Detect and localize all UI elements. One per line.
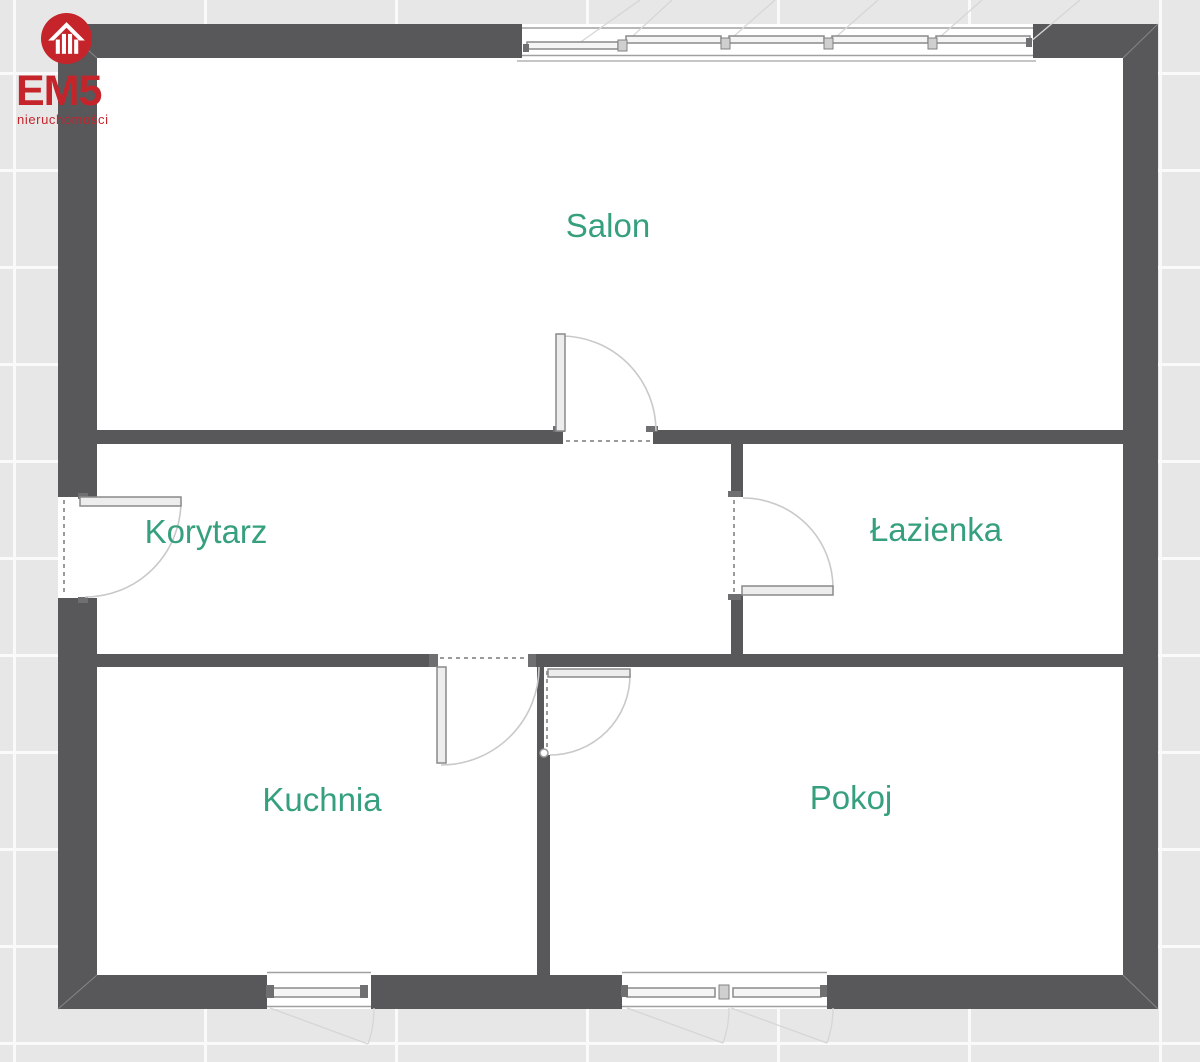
window-sash (273, 988, 364, 997)
window-mullion (824, 38, 833, 49)
room-label-salon: Salon (566, 207, 650, 245)
window-swing-lines (270, 1008, 374, 1044)
logo-tagline-text: nieruchomości (17, 112, 109, 127)
window-end-cap (266, 985, 274, 998)
window-sash (729, 36, 824, 43)
door-leaf (556, 334, 565, 431)
door-opening (437, 654, 533, 667)
window-sash (527, 42, 618, 49)
door-jamb (728, 594, 741, 600)
window-end-cap (523, 44, 529, 52)
window-sash (832, 36, 928, 43)
door-leaf (742, 586, 833, 595)
logo: EM5 nieruchomości (0, 0, 190, 140)
wall-lower-divider (97, 654, 1123, 667)
door-jamb (429, 654, 438, 667)
window-end-cap (621, 985, 628, 997)
window-sash (626, 36, 721, 43)
window-end-cap (820, 985, 827, 997)
door-opening (731, 497, 743, 594)
window-mullion (618, 40, 627, 51)
pokoj-window (621, 971, 833, 1043)
door-jamb (528, 654, 536, 667)
window-mullion (721, 38, 730, 49)
window-sash (627, 988, 715, 997)
room-label-lazienka: Łazienka (870, 511, 1002, 549)
door-jamb (78, 597, 88, 603)
window-sash (733, 988, 821, 997)
door-leaf (80, 497, 181, 506)
window-end-cap (360, 985, 368, 998)
wall-bottom (58, 975, 1158, 1009)
house-icon (41, 13, 92, 64)
house-icon-glyph (41, 13, 92, 64)
logo-brand-text: EM5 (16, 70, 101, 113)
floor-plan-canvas: Salon Korytarz Łazienka Kuchnia Pokoj EM… (0, 0, 1200, 1062)
door-leaf (548, 669, 630, 677)
window-mullion (719, 985, 729, 999)
room-label-pokoj: Pokoj (810, 779, 893, 817)
door-jamb (728, 491, 741, 497)
window-mullion (928, 38, 937, 49)
window-end-cap (1026, 38, 1032, 47)
window-swing-lines (627, 1008, 833, 1043)
salon-window (517, 0, 1080, 61)
wall-right (1123, 24, 1158, 1009)
window-sash (936, 36, 1030, 43)
kuchnia-window (266, 971, 374, 1044)
room-label-korytarz: Korytarz (145, 513, 268, 551)
door-leaf (437, 667, 446, 763)
door-hinge-dot (540, 749, 548, 757)
room-label-kuchnia: Kuchnia (262, 781, 381, 819)
